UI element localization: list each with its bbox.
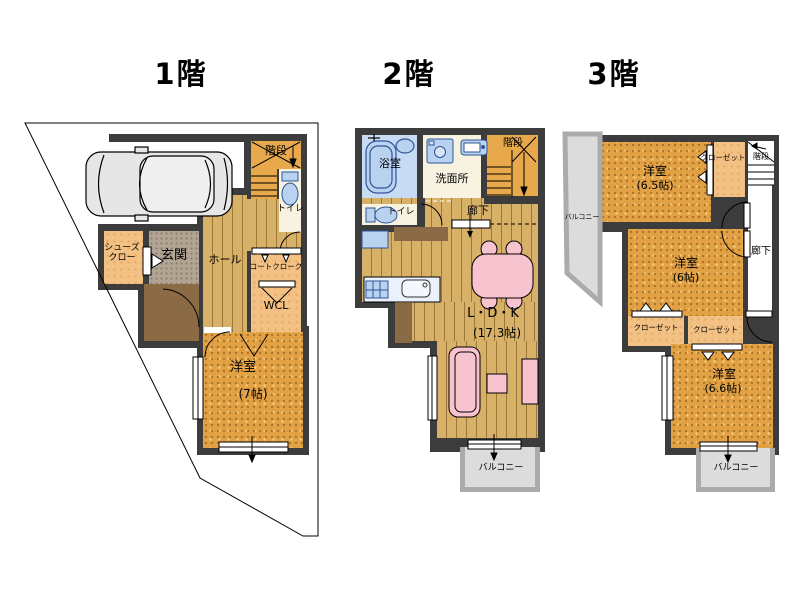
- f1-shoe-closet-label: シューズクロー: [99, 243, 145, 264]
- f2-stairs-label: 階段: [490, 138, 536, 150]
- f3-closet-top-label: クローゼット: [695, 154, 751, 163]
- f3-closet-left-label: クローゼット: [629, 324, 683, 333]
- f1-room-label: 洋室: [213, 361, 273, 376]
- f2-balcony-label: バルコニー: [472, 463, 530, 473]
- f1-hall-label: ホール: [203, 254, 247, 267]
- f3-room3-size-label: (6.6帖): [688, 383, 758, 396]
- f1-porch: [144, 284, 199, 341]
- f1-room-size-label: (7帖): [223, 388, 283, 402]
- f3-room3-label: 洋室: [692, 368, 756, 382]
- f3-room2-size-label: (6帖): [657, 272, 715, 285]
- f1-wcl-label: WCL: [261, 300, 291, 313]
- f1-stairs-label: 階段: [253, 145, 299, 158]
- f3-room1-label: 洋室: [625, 165, 685, 179]
- f2-washroom-label: 洗面所: [424, 173, 480, 186]
- f2-ldk-floor-lower: [437, 341, 538, 438]
- f2-toilet-label: トイレ: [383, 207, 419, 217]
- f3-balcony-left-label: バルコニー: [561, 213, 603, 221]
- f1-stair-treads: [251, 169, 277, 199]
- f1-toilet-room: [279, 169, 301, 232]
- f2-ldk-label: L・D・K: [458, 307, 528, 322]
- f1-shoe-closet-line2: クロー: [108, 253, 135, 263]
- f2-washroom: [423, 135, 481, 198]
- f2-wall-below-stairs: [484, 196, 545, 204]
- f3-room1-size-label: (6.5帖): [621, 180, 689, 193]
- f2-ldk-size-label: (17.3帖): [462, 327, 532, 341]
- floorplan-canvas: 1階 2階 3階: [0, 0, 800, 600]
- f1-entrance-label: 玄関: [152, 249, 196, 264]
- floor1-title: 1階: [146, 58, 216, 91]
- f3-room-66: [671, 344, 773, 448]
- f3-stairs-label: 階段: [745, 152, 777, 161]
- f3-room2-label: 洋室: [655, 257, 717, 271]
- f1-shoe-closet-line1: シューズ: [104, 243, 140, 253]
- f3-corridor-label: 廊下: [746, 246, 776, 258]
- floor2-title: 2階: [374, 58, 444, 91]
- floor3-title: 3階: [579, 58, 649, 91]
- f1-toilet-label: トイレ: [277, 204, 303, 214]
- f1-coat-closet-label: コートクローク: [247, 263, 305, 272]
- f3-balcony-bottom-label: バルコニー: [706, 463, 766, 473]
- f3-closet-top: [714, 142, 745, 197]
- f3-stairs-room: [748, 141, 774, 185]
- f2-bath-label: 浴室: [368, 158, 412, 171]
- f2-corridor-label: 廊下: [460, 205, 496, 218]
- f2-cabinet-left: [395, 303, 412, 343]
- f2-cabinet-top: [394, 227, 448, 241]
- f3-closet-right-label: クローゼット: [689, 326, 742, 335]
